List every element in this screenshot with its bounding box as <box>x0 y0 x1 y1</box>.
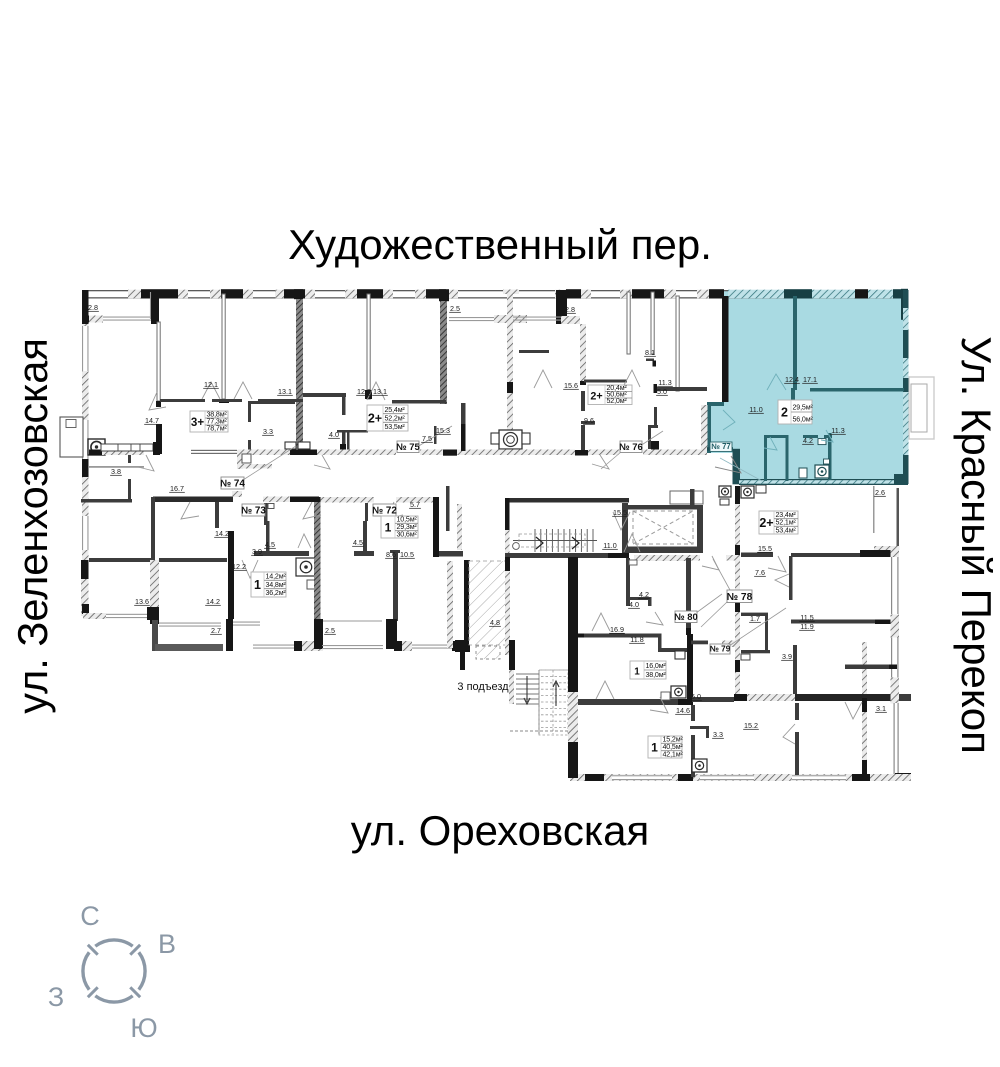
svg-text:3.1: 3.1 <box>876 704 886 713</box>
svg-text:53,5м²: 53,5м² <box>385 423 406 431</box>
svg-text:3.3: 3.3 <box>263 427 273 436</box>
svg-text:2+: 2+ <box>368 412 382 426</box>
svg-text:3.9: 3.9 <box>782 652 792 661</box>
svg-text:12.1: 12.1 <box>204 380 218 389</box>
svg-text:11.0: 11.0 <box>749 405 762 414</box>
svg-text:6.0: 6.0 <box>691 692 701 701</box>
svg-text:15.5: 15.5 <box>758 544 772 553</box>
svg-text:4.0: 4.0 <box>329 430 339 439</box>
svg-text:3+: 3+ <box>191 417 204 429</box>
svg-text:1: 1 <box>385 521 392 535</box>
svg-text:3.8: 3.8 <box>111 467 121 476</box>
svg-text:В: В <box>158 929 176 959</box>
svg-text:42,1м²: 42,1м² <box>663 750 684 758</box>
svg-text:11.3: 11.3 <box>658 378 671 387</box>
svg-text:4.2: 4.2 <box>803 436 813 445</box>
svg-text:17.1: 17.1 <box>803 375 817 384</box>
svg-text:2: 2 <box>781 406 788 420</box>
svg-text:12.4: 12.4 <box>785 375 799 384</box>
svg-text:13.6: 13.6 <box>135 597 149 606</box>
svg-text:12.3: 12.3 <box>357 387 371 396</box>
svg-text:30,6м²: 30,6м² <box>397 530 418 538</box>
svg-text:1: 1 <box>651 741 658 755</box>
svg-text:Ю: Ю <box>130 1013 157 1043</box>
svg-text:1: 1 <box>254 578 261 592</box>
svg-text:15.2: 15.2 <box>744 721 758 730</box>
svg-text:№ 73: № 73 <box>241 505 266 516</box>
svg-text:№ 75: № 75 <box>396 441 420 452</box>
svg-text:7.6: 7.6 <box>755 568 765 577</box>
svg-text:ул. Зеленхозовская: ул. Зеленхозовская <box>9 338 56 714</box>
svg-text:№ 79: № 79 <box>710 644 731 653</box>
svg-text:№ 74: № 74 <box>220 478 245 489</box>
svg-text:9.6: 9.6 <box>584 416 594 425</box>
svg-text:11.0: 11.0 <box>603 541 616 550</box>
svg-text:Художественный пер.: Художественный пер. <box>288 221 712 268</box>
svg-text:13.1: 13.1 <box>278 387 292 396</box>
svg-text:16.7: 16.7 <box>170 484 184 493</box>
svg-text:14.2: 14.2 <box>215 529 229 538</box>
svg-text:15.6: 15.6 <box>564 381 578 390</box>
svg-text:34,8м²: 34,8м² <box>266 581 287 589</box>
svg-text:53,4м²: 53,4м² <box>776 526 797 534</box>
svg-text:29,5м²: 29,5м² <box>793 403 814 411</box>
svg-text:№ 76: № 76 <box>619 441 643 452</box>
svg-text:14.7: 14.7 <box>145 416 159 425</box>
svg-text:7.5: 7.5 <box>422 434 432 443</box>
svg-text:11.9: 11.9 <box>800 622 813 631</box>
svg-text:1.7: 1.7 <box>750 614 760 623</box>
svg-text:4.0: 4.0 <box>629 600 639 609</box>
svg-text:5.0: 5.0 <box>657 387 667 396</box>
svg-text:ул. Ореховская: ул. Ореховская <box>351 807 650 854</box>
svg-text:С: С <box>80 901 100 931</box>
svg-text:4.5: 4.5 <box>353 538 363 547</box>
svg-text:16,0м²: 16,0м² <box>646 662 667 670</box>
svg-text:4.8: 4.8 <box>490 618 500 627</box>
svg-text:11.3: 11.3 <box>831 426 844 435</box>
svg-text:3.9: 3.9 <box>252 547 262 556</box>
svg-text:4.5: 4.5 <box>265 540 275 549</box>
svg-text:2+: 2+ <box>590 390 602 402</box>
svg-text:№ 72: № 72 <box>372 505 397 516</box>
svg-text:8.1: 8.1 <box>645 348 655 357</box>
svg-text:2.8: 2.8 <box>565 305 575 314</box>
svg-text:2.5: 2.5 <box>325 626 335 635</box>
svg-text:52,0м²: 52,0м² <box>607 397 628 405</box>
svg-text:5.7: 5.7 <box>410 500 420 509</box>
svg-text:14.2: 14.2 <box>206 597 220 606</box>
svg-text:2.8: 2.8 <box>88 303 98 312</box>
svg-text:№ 78: № 78 <box>727 592 753 603</box>
svg-text:З: З <box>48 982 64 1012</box>
svg-text:56,0м²: 56,0м² <box>793 415 814 423</box>
svg-text:12.2: 12.2 <box>232 562 246 571</box>
svg-text:3.3: 3.3 <box>713 730 723 739</box>
svg-text:25,4м²: 25,4м² <box>385 406 406 414</box>
svg-text:52,2м²: 52,2м² <box>385 414 406 422</box>
svg-text:2+: 2+ <box>759 516 773 530</box>
svg-text:78,7м²: 78,7м² <box>207 424 228 432</box>
svg-text:11.8: 11.8 <box>630 635 643 644</box>
svg-text:№ 80: № 80 <box>674 611 698 622</box>
svg-text:2.7: 2.7 <box>211 626 221 635</box>
svg-text:14,2м²: 14,2м² <box>266 573 287 581</box>
svg-text:3 подъезд: 3 подъезд <box>457 681 509 693</box>
svg-text:10.5: 10.5 <box>400 550 414 559</box>
svg-text:11.5: 11.5 <box>800 613 813 622</box>
svg-text:4.2: 4.2 <box>639 590 649 599</box>
svg-text:36,2м²: 36,2м² <box>266 589 287 597</box>
svg-text:8.6: 8.6 <box>386 550 396 559</box>
svg-text:15.3: 15.3 <box>436 426 450 435</box>
svg-text:13.1: 13.1 <box>373 387 387 396</box>
svg-text:Ул. Красный Перекоп: Ул. Красный Перекоп <box>953 336 1000 754</box>
svg-text:2.6: 2.6 <box>875 488 885 497</box>
svg-text:38,0м²: 38,0м² <box>646 671 667 679</box>
svg-text:16.9: 16.9 <box>610 625 624 634</box>
svg-text:15.5: 15.5 <box>613 508 627 517</box>
svg-text:2.5: 2.5 <box>450 304 460 313</box>
svg-text:1: 1 <box>634 667 640 678</box>
svg-text:№ 77: № 77 <box>711 442 731 451</box>
svg-text:14.6: 14.6 <box>676 706 690 715</box>
